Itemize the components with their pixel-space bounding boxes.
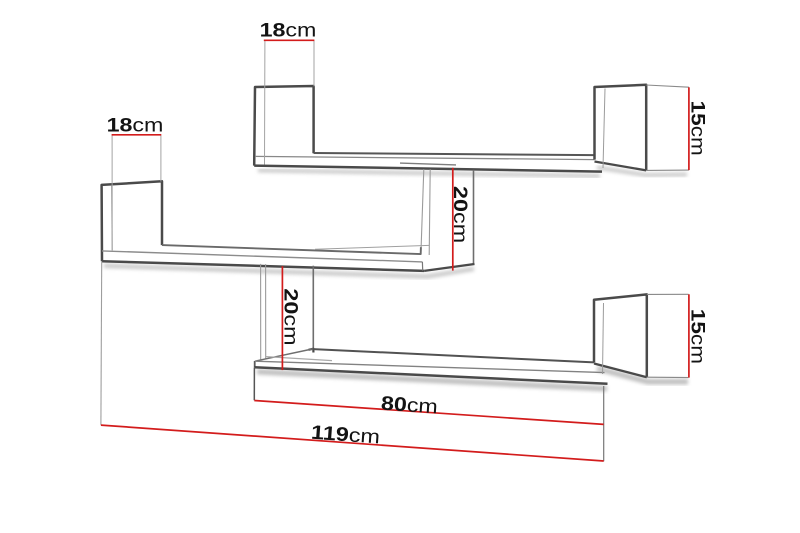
svg-text:15cm: 15cm: [687, 101, 708, 156]
svg-text:80cm: 80cm: [380, 392, 438, 418]
svg-text:20cm: 20cm: [450, 186, 473, 243]
svg-text:18cm: 18cm: [107, 114, 164, 136]
svg-text:20cm: 20cm: [280, 288, 303, 345]
svg-text:18cm: 18cm: [260, 19, 317, 41]
svg-text:119cm: 119cm: [310, 420, 381, 448]
svg-text:15cm: 15cm: [687, 309, 708, 364]
